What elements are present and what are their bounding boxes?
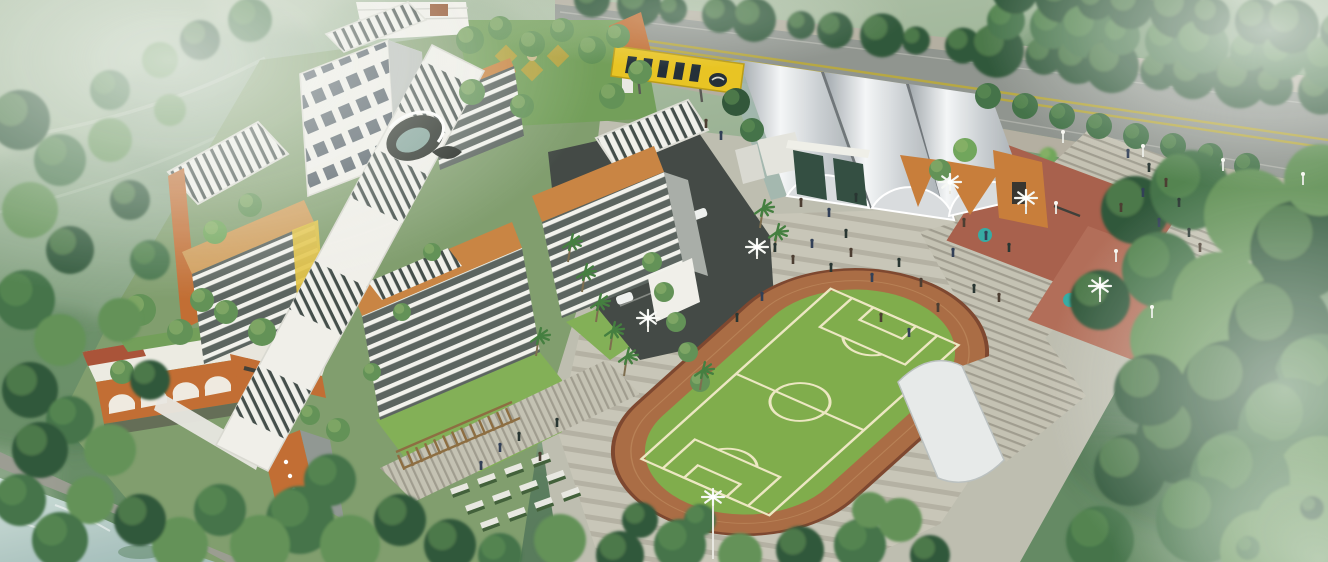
campus-aerial-rendering (0, 0, 1328, 562)
campus-rendering-stage (0, 0, 1328, 562)
atmospheric-haze (0, 0, 1328, 562)
